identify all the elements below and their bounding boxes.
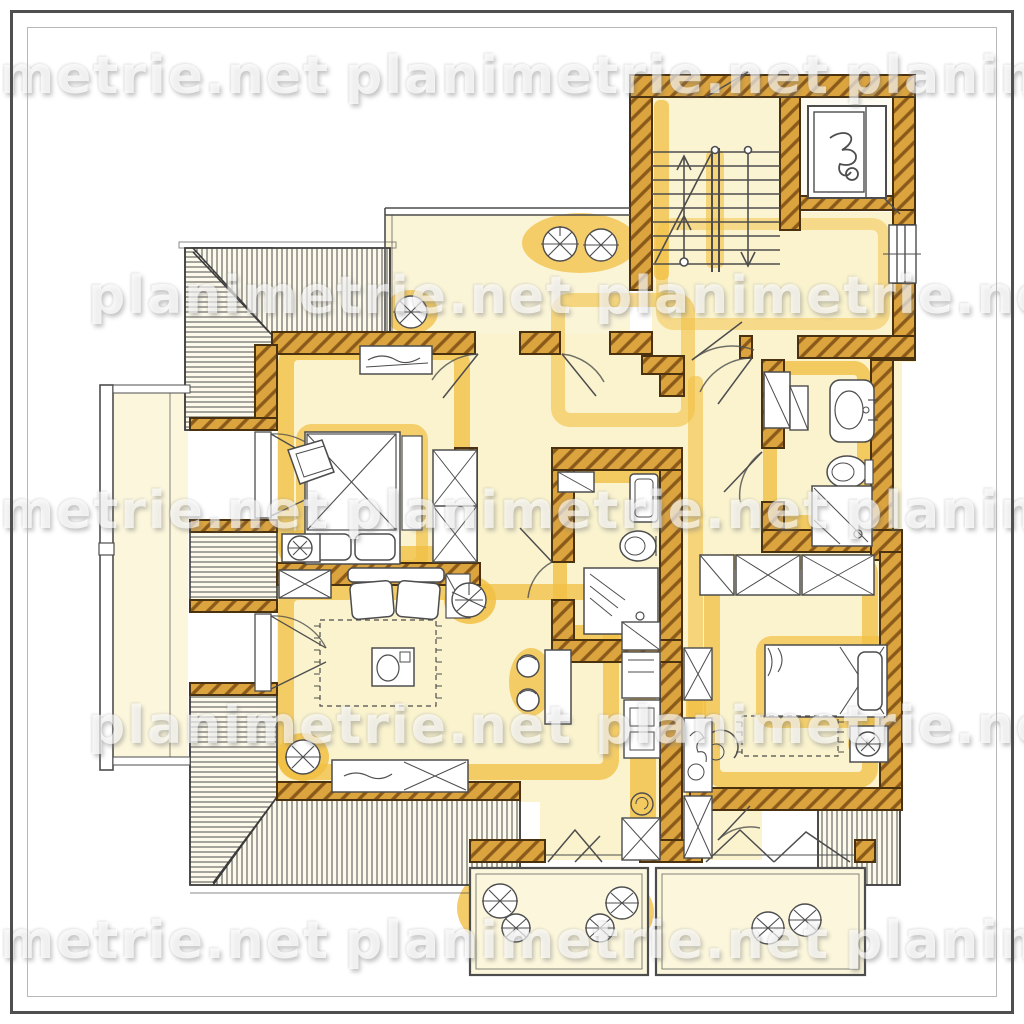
toilet-icon [827,456,873,488]
potted-plant-icon [452,583,486,617]
elevator-room [808,106,900,214]
coffee-table [372,648,414,686]
wardrobe-icon [700,555,874,595]
potted-plant-icon [856,732,880,756]
sink-icon [830,380,878,442]
right-wall-window [883,225,921,283]
roof-slope-left-pier [190,532,277,600]
shelf [279,570,331,598]
potted-plant-icon [285,740,321,774]
floor-plan-page: planimetrie.net planimetrie.net planimet… [0,0,1024,1024]
kitchen-counter-icon [684,648,712,858]
kitchen-counter-icon [622,622,660,860]
bath-shelf [558,472,594,492]
floor-plan-drawing [0,0,1024,1024]
sideboard [332,760,468,792]
potted-plant-icon [288,536,312,560]
dresser [360,346,432,374]
wardrobe-icon [433,450,477,562]
bed-icon [765,645,887,717]
shower-icon [812,486,872,546]
bath-shelf [764,372,790,428]
hall-shelf [790,386,808,430]
sofa-icon [348,568,470,620]
